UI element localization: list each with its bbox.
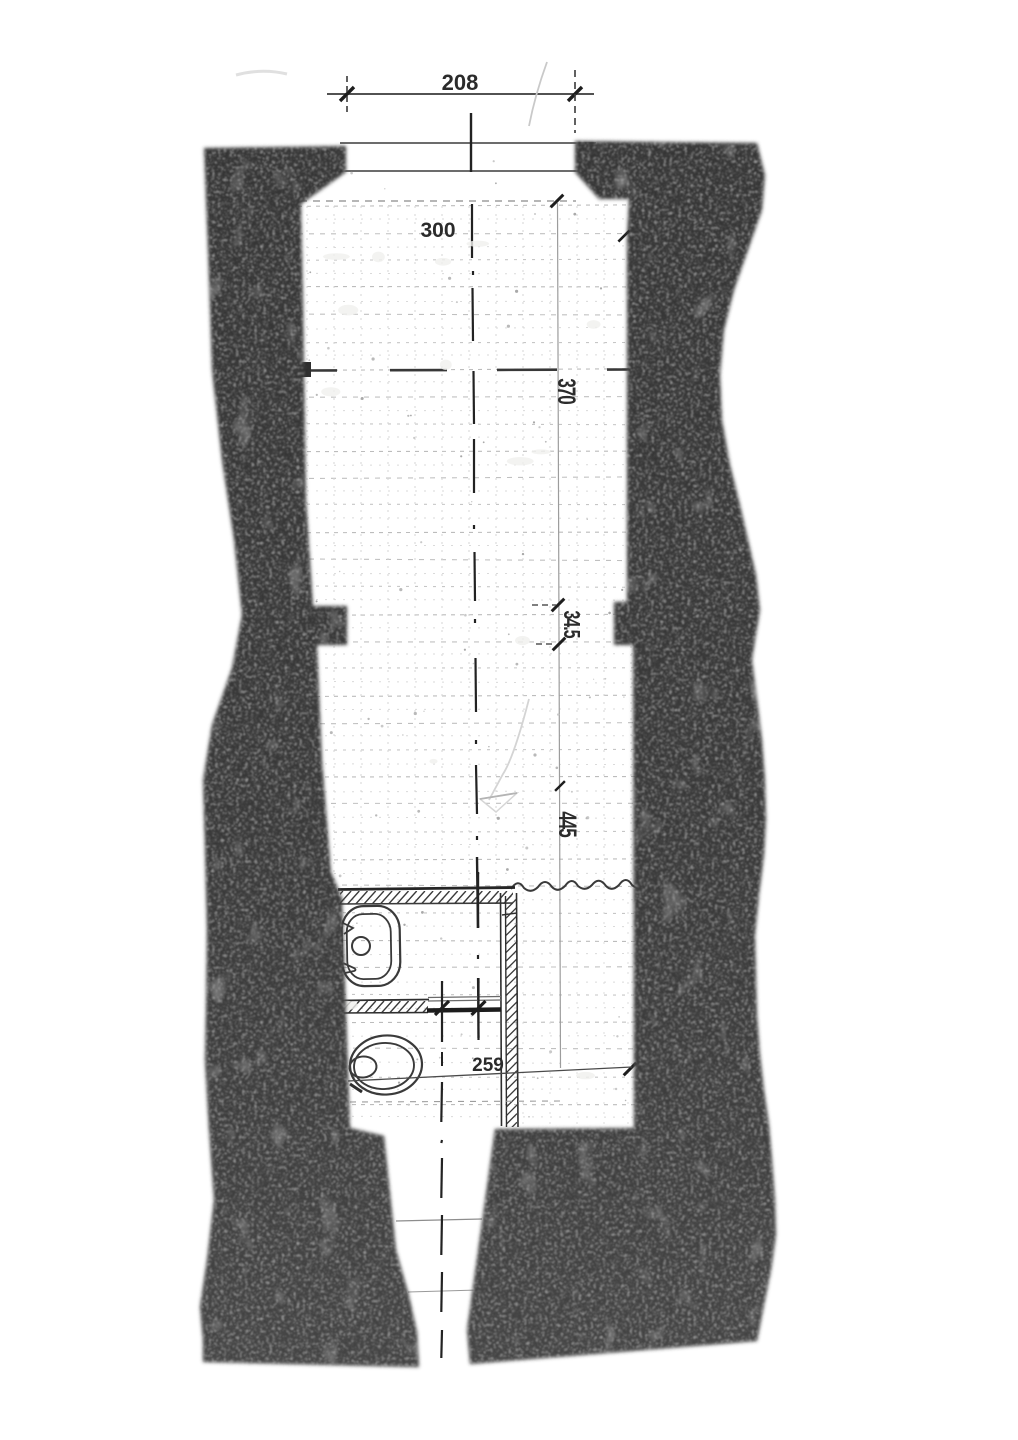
svg-text:208: 208 <box>442 70 479 95</box>
svg-text:300: 300 <box>420 219 455 242</box>
svg-text:445: 445 <box>553 811 580 838</box>
svg-text:370: 370 <box>552 378 579 404</box>
svg-text:34.5: 34.5 <box>558 610 584 638</box>
svg-text:259: 259 <box>472 1055 504 1076</box>
